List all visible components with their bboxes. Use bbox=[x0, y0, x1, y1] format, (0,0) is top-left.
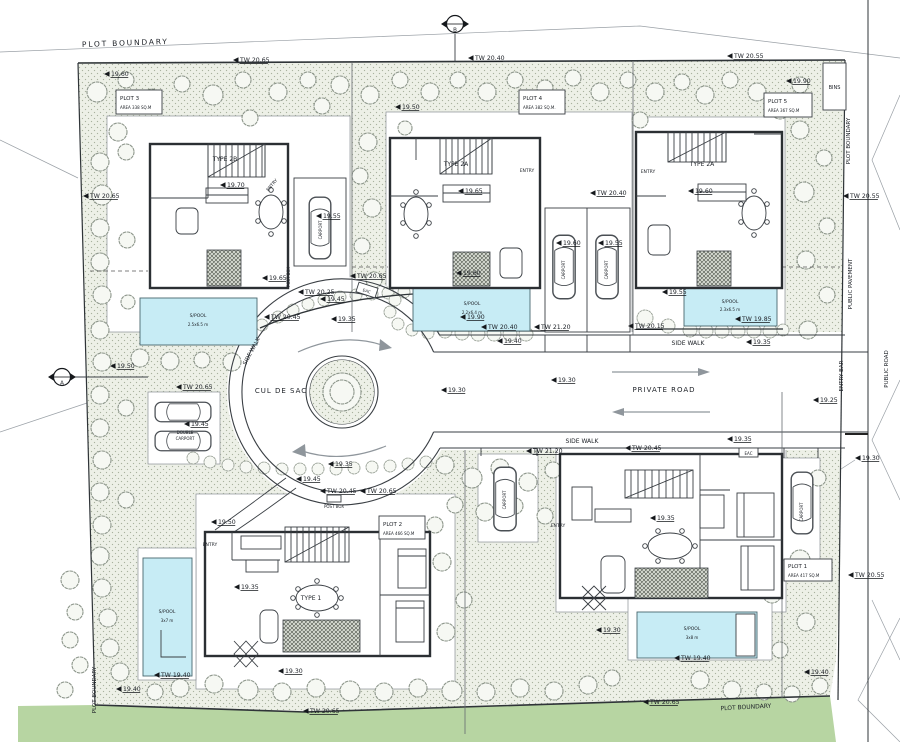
svg-text:S/POOL: S/POOL bbox=[464, 301, 481, 307]
svg-text:CARPORT: CARPORT bbox=[561, 260, 566, 279]
svg-text:S/POOL: S/POOL bbox=[684, 626, 701, 632]
bush bbox=[392, 318, 404, 330]
svg-text:19.30: 19.30 bbox=[603, 627, 621, 634]
entry-label: ENTRY bbox=[551, 523, 566, 529]
tree bbox=[437, 623, 455, 641]
tree bbox=[91, 253, 109, 271]
plot-4-label: PLOT 4AREA 382 SQ.M. bbox=[519, 90, 565, 114]
svg-text:CARPORT: CARPORT bbox=[604, 260, 609, 279]
pool: S/POOL 3x8 m bbox=[637, 612, 757, 658]
public-pavement-label: PUBLIC PAVEMENT bbox=[848, 258, 854, 309]
tree bbox=[119, 232, 135, 248]
bush bbox=[384, 306, 396, 318]
house-type-2a-right: TYPE 2A ENTRY bbox=[636, 132, 782, 288]
bush bbox=[222, 459, 234, 471]
svg-text:B: B bbox=[453, 28, 457, 34]
bush bbox=[312, 463, 324, 475]
tree bbox=[456, 592, 472, 608]
tree bbox=[632, 112, 648, 128]
tree bbox=[161, 352, 179, 370]
svg-text:TW 20.55: TW 20.55 bbox=[733, 53, 764, 60]
svg-text:19.35: 19.35 bbox=[335, 461, 353, 468]
planter bbox=[697, 251, 731, 286]
svg-text:AREA 417 SQ.M: AREA 417 SQ.M bbox=[788, 573, 820, 578]
svg-text:TW 20.55: TW 20.55 bbox=[854, 572, 885, 579]
svg-text:TW 20.45: TW 20.45 bbox=[270, 314, 301, 321]
svg-text:TW 20.65: TW 20.65 bbox=[356, 273, 387, 280]
tree bbox=[519, 473, 537, 491]
svg-text:19.65: 19.65 bbox=[269, 275, 287, 282]
tree bbox=[91, 386, 109, 404]
tree bbox=[696, 86, 714, 104]
bush bbox=[187, 452, 199, 464]
tree bbox=[722, 72, 738, 88]
carport-d2: CARPORT bbox=[494, 467, 516, 531]
tree bbox=[354, 238, 370, 254]
svg-text:TW 20.40: TW 20.40 bbox=[487, 324, 518, 331]
tree bbox=[205, 675, 223, 693]
svg-text:19.40: 19.40 bbox=[504, 338, 522, 345]
tree bbox=[797, 251, 815, 269]
tree bbox=[476, 503, 494, 521]
svg-text:3x8 m: 3x8 m bbox=[686, 635, 699, 640]
tree bbox=[591, 83, 609, 101]
tree bbox=[238, 680, 258, 700]
tree bbox=[363, 199, 381, 217]
svg-text:CARPORT: CARPORT bbox=[799, 502, 804, 521]
tree bbox=[723, 681, 741, 699]
svg-text:DOUBLE: DOUBLE bbox=[177, 430, 194, 435]
tree bbox=[331, 76, 349, 94]
svg-text:TW 21.20: TW 21.20 bbox=[532, 448, 563, 455]
tree bbox=[433, 553, 451, 571]
svg-text:19.55: 19.55 bbox=[323, 213, 341, 220]
svg-text:EAC: EAC bbox=[745, 451, 753, 456]
svg-text:19.60: 19.60 bbox=[463, 270, 481, 277]
tree bbox=[450, 72, 466, 88]
plot-boundary-right-label: PLOT BOUNDARY bbox=[846, 117, 852, 164]
tree bbox=[174, 76, 190, 92]
tree bbox=[791, 121, 809, 139]
svg-text:S/POOL: S/POOL bbox=[722, 299, 739, 305]
tree bbox=[427, 517, 443, 533]
tree bbox=[111, 663, 129, 681]
svg-text:TW 19.40: TW 19.40 bbox=[680, 655, 711, 662]
svg-text:19.65: 19.65 bbox=[465, 188, 483, 195]
bush bbox=[384, 460, 396, 472]
tree bbox=[784, 686, 800, 702]
house-type-label: TYPE 2A bbox=[443, 161, 469, 168]
svg-text:PLOT 3: PLOT 3 bbox=[120, 96, 140, 102]
tree bbox=[72, 657, 88, 673]
tree bbox=[235, 72, 251, 88]
tree bbox=[109, 123, 127, 141]
svg-text:19.30: 19.30 bbox=[285, 668, 303, 675]
tree bbox=[93, 451, 111, 469]
entry-bar-label: ENTRY BAR bbox=[839, 360, 845, 391]
svg-text:TW 20.65: TW 20.65 bbox=[239, 57, 270, 64]
tree bbox=[812, 678, 828, 694]
svg-text:19.35: 19.35 bbox=[734, 436, 752, 443]
svg-text:TW 20.65: TW 20.65 bbox=[89, 193, 120, 200]
tree bbox=[507, 72, 523, 88]
tree bbox=[203, 85, 223, 105]
entry-label: ENTRY bbox=[641, 169, 656, 175]
svg-text:2.5x6.5 m: 2.5x6.5 m bbox=[188, 322, 208, 327]
tree bbox=[604, 670, 620, 686]
bush bbox=[240, 461, 252, 473]
svg-text:PLOT 2: PLOT 2 bbox=[383, 522, 402, 528]
carport-e: CARPORT bbox=[791, 472, 813, 534]
svg-text:19.60: 19.60 bbox=[111, 71, 129, 78]
tree bbox=[223, 353, 241, 371]
tree bbox=[314, 98, 330, 114]
svg-text:2.3x6.5 m: 2.3x6.5 m bbox=[720, 307, 740, 312]
house-type-label: TYPE 2A bbox=[689, 161, 715, 168]
svg-text:AREA 367 SQ.M: AREA 367 SQ.M bbox=[768, 108, 800, 113]
svg-text:A: A bbox=[60, 381, 64, 387]
tree bbox=[772, 642, 788, 658]
planter bbox=[283, 620, 360, 652]
svg-text:19.55: 19.55 bbox=[605, 240, 623, 247]
tree bbox=[61, 571, 79, 589]
tree bbox=[421, 83, 439, 101]
plot-3-label: PLOT 3AREA 338 SQ.M bbox=[116, 90, 162, 114]
cul-de-sac-label: CUL DE SAC bbox=[255, 387, 307, 395]
svg-text:19.30: 19.30 bbox=[862, 455, 880, 462]
tree bbox=[118, 144, 134, 160]
svg-text:19.90: 19.90 bbox=[467, 314, 485, 321]
plot-1-label: PLOT 1AREA 417 SQ.M bbox=[784, 559, 832, 581]
bush bbox=[366, 461, 378, 473]
tree bbox=[409, 679, 427, 697]
tree bbox=[565, 70, 581, 86]
tree bbox=[361, 86, 379, 104]
tree bbox=[819, 287, 835, 303]
svg-text:19.55: 19.55 bbox=[669, 289, 687, 296]
svg-text:19.50: 19.50 bbox=[402, 104, 420, 111]
tree bbox=[537, 508, 553, 524]
pool: S/POOL 3x7 m bbox=[143, 558, 192, 676]
svg-text:19.25: 19.25 bbox=[820, 397, 838, 404]
svg-text:19.45: 19.45 bbox=[327, 296, 345, 303]
tree bbox=[392, 72, 408, 88]
tree bbox=[62, 632, 78, 648]
tree bbox=[67, 604, 83, 620]
house-plot1: ENTRY bbox=[551, 454, 782, 610]
tree bbox=[93, 579, 111, 597]
bush bbox=[402, 458, 414, 470]
house-type-2b: TYPE 2B ENTRY bbox=[150, 144, 288, 288]
tree bbox=[797, 613, 815, 631]
tree bbox=[171, 679, 189, 697]
plot-boundary-left-label: PLOT BOUNDARY bbox=[92, 666, 98, 713]
svg-text:CARPORT: CARPORT bbox=[318, 220, 323, 239]
tree bbox=[121, 295, 135, 309]
car bbox=[155, 402, 211, 422]
tree bbox=[816, 150, 832, 166]
svg-text:TW 19.40: TW 19.40 bbox=[160, 672, 191, 679]
planter bbox=[453, 252, 490, 286]
svg-text:TW 20.65: TW 20.65 bbox=[182, 384, 213, 391]
house-type-2a-middle: TYPE 2A ENTRY bbox=[390, 138, 540, 288]
bush bbox=[204, 456, 216, 468]
svg-text:19.45: 19.45 bbox=[191, 421, 209, 428]
tree bbox=[748, 83, 766, 101]
svg-text:TW 20.45: TW 20.45 bbox=[326, 488, 357, 495]
tree bbox=[269, 83, 287, 101]
svg-text:TW 20.65: TW 20.65 bbox=[309, 708, 340, 715]
svg-text:TW 20.25: TW 20.25 bbox=[304, 289, 335, 296]
svg-text:TW 20.40: TW 20.40 bbox=[596, 190, 627, 197]
svg-text:19.45: 19.45 bbox=[303, 476, 321, 483]
svg-text:TW 21.20: TW 21.20 bbox=[540, 324, 571, 331]
tree bbox=[620, 72, 636, 88]
tree bbox=[799, 321, 817, 339]
pool: S/POOL 2.5x6.5 m bbox=[140, 298, 257, 345]
svg-text:TW 19.85: TW 19.85 bbox=[741, 316, 772, 323]
tree bbox=[340, 681, 360, 701]
svg-text:S/POOL: S/POOL bbox=[159, 609, 176, 615]
svg-text:PLOT 1: PLOT 1 bbox=[788, 564, 807, 570]
svg-text:TW 20.40: TW 20.40 bbox=[474, 55, 505, 62]
bush bbox=[294, 463, 306, 475]
post-box-label: POST BOX bbox=[324, 504, 344, 509]
tree bbox=[300, 72, 316, 88]
tree bbox=[91, 419, 109, 437]
house-type-label: TYPE 1 bbox=[300, 595, 322, 602]
bush bbox=[777, 324, 789, 336]
svg-text:19.60: 19.60 bbox=[695, 188, 713, 195]
tree bbox=[794, 182, 814, 202]
svg-text:19.50: 19.50 bbox=[218, 519, 236, 526]
svg-text:19.60: 19.60 bbox=[563, 240, 581, 247]
svg-text:PLOT 4: PLOT 4 bbox=[523, 96, 543, 102]
plot-5-label: PLOT 5AREA 367 SQ.M bbox=[764, 93, 812, 117]
svg-text:TW 20.45: TW 20.45 bbox=[631, 445, 662, 452]
tree bbox=[691, 671, 709, 689]
svg-text:19.50: 19.50 bbox=[117, 363, 135, 370]
tree bbox=[477, 683, 495, 701]
svg-text:19.40: 19.40 bbox=[811, 669, 829, 676]
tree bbox=[57, 682, 73, 698]
tree bbox=[307, 679, 325, 697]
side-walk-label: SIDE WALK bbox=[566, 438, 600, 445]
svg-text:19.35: 19.35 bbox=[657, 515, 675, 522]
tree bbox=[545, 682, 563, 700]
plot-2-label: PLOT 2AREA 466 SQ.M bbox=[379, 516, 425, 539]
tree bbox=[91, 153, 109, 171]
bins: BINS bbox=[823, 63, 846, 110]
tree bbox=[87, 82, 107, 102]
tree bbox=[91, 547, 109, 565]
tree bbox=[273, 683, 291, 701]
tree bbox=[511, 679, 529, 697]
tree bbox=[118, 400, 134, 416]
tree bbox=[375, 683, 393, 701]
bush bbox=[258, 462, 270, 474]
svg-text:3x7 m: 3x7 m bbox=[161, 618, 174, 623]
tree bbox=[579, 676, 597, 694]
tree bbox=[147, 684, 163, 700]
entry-label: ENTRY bbox=[203, 542, 218, 548]
private-road-label: PRIVATE ROAD bbox=[632, 386, 695, 394]
tree bbox=[242, 110, 258, 126]
house-type-label: TYPE 2B bbox=[212, 156, 238, 163]
tree bbox=[436, 456, 454, 474]
svg-text:19.35: 19.35 bbox=[241, 584, 259, 591]
tree bbox=[359, 133, 377, 151]
tree bbox=[99, 609, 117, 627]
tree bbox=[194, 352, 210, 368]
svg-text:CARPORT: CARPORT bbox=[502, 490, 507, 509]
tree bbox=[545, 462, 561, 478]
tree bbox=[447, 497, 463, 513]
svg-text:PLOT 5: PLOT 5 bbox=[768, 99, 788, 105]
tree bbox=[352, 168, 368, 184]
svg-text:AREA 466 SQ.M: AREA 466 SQ.M bbox=[383, 531, 415, 536]
svg-text:19.35: 19.35 bbox=[338, 316, 356, 323]
tree bbox=[93, 353, 111, 371]
planter bbox=[635, 568, 708, 598]
entry-label: ENTRY bbox=[520, 168, 535, 174]
svg-text:TW 20.65: TW 20.65 bbox=[649, 699, 680, 706]
svg-text:19.30: 19.30 bbox=[448, 387, 466, 394]
carports-b-c: CARPORT CARPORT bbox=[545, 208, 630, 332]
tree bbox=[91, 321, 109, 339]
public-road-label: PUBLIC ROAD bbox=[884, 350, 890, 387]
tree bbox=[819, 218, 835, 234]
svg-text:TW 20.15: TW 20.15 bbox=[634, 323, 665, 330]
planter bbox=[207, 250, 241, 286]
svg-text:19.70: 19.70 bbox=[227, 182, 245, 189]
tree bbox=[646, 83, 664, 101]
svg-text:19.35: 19.35 bbox=[753, 339, 771, 346]
post-box-label: POST BOX bbox=[286, 267, 291, 287]
svg-text:CARPORT: CARPORT bbox=[176, 436, 195, 441]
tree bbox=[91, 219, 109, 237]
svg-text:TW 20.55: TW 20.55 bbox=[849, 193, 880, 200]
svg-text:19.40: 19.40 bbox=[123, 686, 141, 693]
tree bbox=[478, 83, 496, 101]
svg-text:AREA 338 SQ.M: AREA 338 SQ.M bbox=[120, 105, 152, 110]
tree bbox=[442, 681, 462, 701]
svg-text:S/POOL: S/POOL bbox=[190, 313, 207, 319]
side-walk-label: SIDE WALK bbox=[672, 340, 706, 347]
tree bbox=[93, 286, 111, 304]
site-plan-drawing: S/POOL 2.5x6.5 m S/POOL 2.2x6.4 m S/POOL… bbox=[0, 0, 900, 742]
svg-text:19.30: 19.30 bbox=[558, 377, 576, 384]
tree bbox=[674, 74, 690, 90]
svg-text:19.90: 19.90 bbox=[793, 78, 811, 85]
tree bbox=[118, 492, 134, 508]
tree bbox=[93, 516, 111, 534]
svg-text:TW 20.65: TW 20.65 bbox=[366, 488, 397, 495]
svg-text:BINS: BINS bbox=[829, 85, 841, 91]
tree bbox=[91, 483, 109, 501]
tree bbox=[101, 639, 119, 657]
tree bbox=[398, 121, 412, 135]
svg-text:AREA 382 SQ.M.: AREA 382 SQ.M. bbox=[523, 105, 556, 110]
